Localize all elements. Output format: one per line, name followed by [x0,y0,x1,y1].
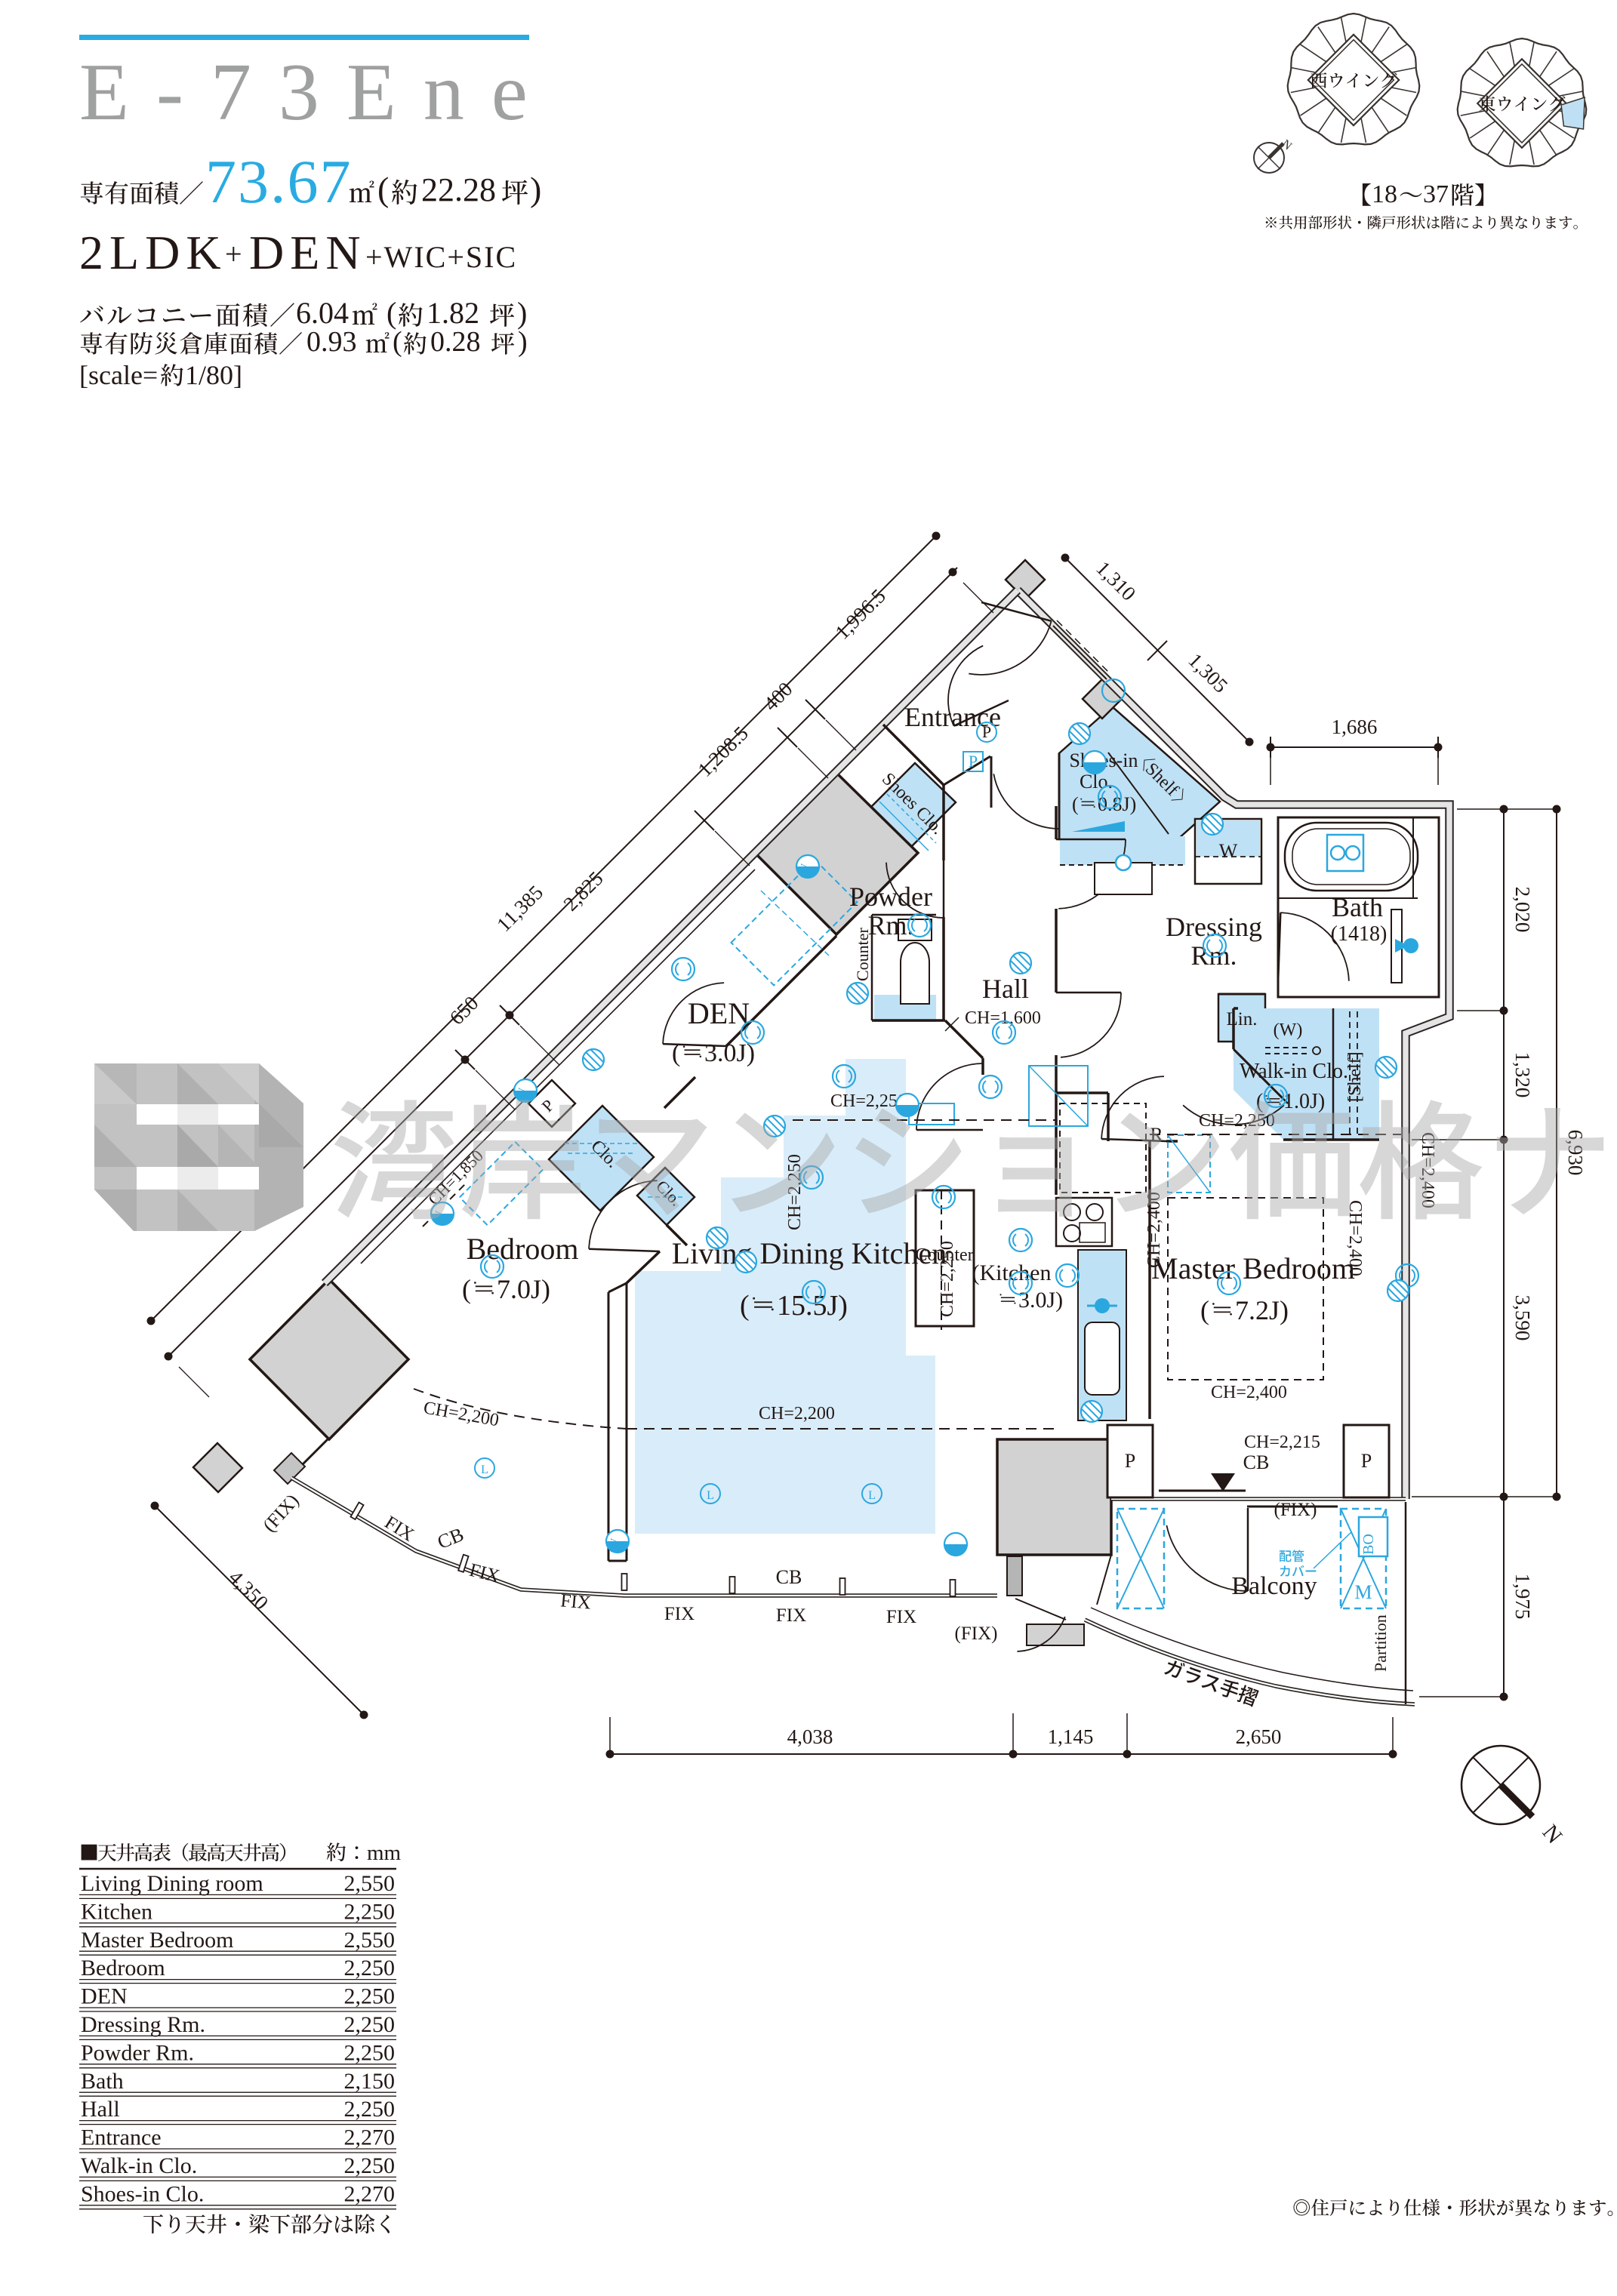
svg-text:+: + [225,237,242,271]
svg-text:Master Bedroom: Master Bedroom [1151,1251,1355,1285]
svg-text:[scale=: [scale= [79,360,158,390]
svg-text:2,250: 2,250 [344,1984,396,2009]
svg-text:(: ( [387,296,396,330]
svg-text:CH=2,215: CH=2,215 [1244,1433,1320,1452]
svg-text:(: ( [393,326,402,358]
svg-text:D: D [1086,762,1098,770]
svg-text:Kitchen: Kitchen [81,1899,152,1924]
svg-text:Bedroom: Bedroom [81,1956,165,1981]
svg-text:(: ( [462,1274,471,1304]
svg-text:Balcony: Balcony [1231,1572,1317,1600]
svg-text:6,930: 6,930 [1564,1130,1587,1176]
svg-text:(Kitchen: (Kitchen [972,1260,1052,1285]
svg-text:(: ( [1072,793,1079,815]
svg-text:1,145: 1,145 [1048,1725,1094,1748]
svg-text:7.0J): 7.0J) [497,1274,550,1304]
svg-text:FIX: FIX [559,1590,591,1613]
svg-text:Powder: Powder [849,882,932,912]
svg-text:CH=2,400: CH=2,400 [1211,1383,1287,1402]
svg-text:2,250: 2,250 [344,2012,396,2037]
svg-text:2,250: 2,250 [344,2097,396,2122]
svg-text:FIX: FIX [776,1605,806,1626]
svg-text:2,550: 2,550 [344,1928,396,1953]
svg-text:): ) [518,326,528,358]
svg-text:(: ( [672,1039,680,1067]
svg-text:Bath: Bath [1332,892,1383,922]
svg-text:7.2J): 7.2J) [1235,1295,1289,1325]
svg-text:P: P [1361,1450,1372,1472]
svg-text:P: P [969,752,978,771]
svg-text:(: ( [740,1290,750,1322]
svg-text:(FIX): (FIX) [1274,1500,1317,1520]
svg-text:Partition: Partition [1371,1614,1390,1672]
svg-text:22.28: 22.28 [421,171,496,208]
svg-text:2,020: 2,020 [1511,887,1534,933]
svg-text:): ) [530,170,541,208]
svg-text:BO: BO [1360,1534,1377,1555]
svg-text:P: P [982,722,991,741]
svg-text:2,250: 2,250 [344,2040,396,2065]
svg-text:Entrance: Entrance [81,2125,162,2150]
svg-text:TV: TV [517,1088,528,1102]
svg-text:2,550: 2,550 [344,1871,396,1896]
svg-text:(W): (W) [1274,1020,1303,1040]
svg-text:2,270: 2,270 [344,2125,396,2150]
svg-text:L: L [707,1489,714,1502]
svg-text:3.0J): 3.0J) [1018,1288,1063,1313]
svg-text:+WIC+SIC: +WIC+SIC [365,240,517,274]
svg-text:Walk-in Clo.: Walk-in Clo. [81,2153,197,2178]
svg-text:Dressing: Dressing [1166,912,1262,942]
svg-text:Counter: Counter [915,1245,973,1265]
svg-text:2LDK: 2LDK [79,226,227,279]
svg-text:Counter: Counter [853,927,872,981]
svg-text:W: W [1219,840,1238,862]
svg-text:(1418): (1418) [1331,922,1388,946]
svg-text:Hall: Hall [81,2097,120,2122]
svg-text:1.0J): 1.0J) [1283,1090,1325,1113]
svg-text:CH=2,200: CH=2,200 [759,1404,835,1423]
svg-text:1.82: 1.82 [427,296,479,330]
svg-text:(: ( [377,170,389,208]
svg-text:2,150: 2,150 [344,2069,396,2094]
svg-text:3.0J): 3.0J) [704,1039,755,1067]
svg-text:18: 18 [1372,180,1397,208]
svg-text:2,650: 2,650 [1236,1725,1282,1748]
svg-text:Bath: Bath [81,2069,124,2094]
svg-text:DEN: DEN [249,226,367,279]
svg-text:TV: TV [799,863,811,878]
svg-text:E-73Ene: E-73Ene [79,48,555,137]
svg-text:1,320: 1,320 [1511,1052,1534,1098]
svg-text:mm: mm [367,1841,402,1865]
svg-text:0.28: 0.28 [430,326,481,358]
svg-text:[Shelf]: [Shelf] [1345,1051,1365,1102]
svg-text:Living Dining room: Living Dining room [81,1871,263,1896]
svg-text:6.04: 6.04 [296,296,349,330]
svg-text:FIX: FIX [886,1607,916,1627]
svg-text:Master Bedroom: Master Bedroom [81,1928,233,1953]
svg-text:TV: TV [609,1538,621,1553]
svg-text:CB: CB [776,1566,802,1588]
svg-text:4,038: 4,038 [787,1725,833,1748]
svg-text:73.67: 73.67 [205,147,353,216]
svg-text:DEN: DEN [688,996,750,1030]
svg-text:L: L [868,1489,876,1502]
svg-text:Rm.: Rm. [867,910,913,940]
svg-text:(FIX): (FIX) [955,1624,998,1644]
svg-text:3,590: 3,590 [1511,1295,1534,1341]
svg-text:M: M [947,1543,959,1553]
svg-text:Dressing Rm.: Dressing Rm. [81,2012,205,2037]
svg-text:FIX: FIX [664,1604,695,1624]
svg-text:CB: CB [1243,1451,1270,1473]
svg-text:CH=2,250: CH=2,250 [830,1091,907,1111]
svg-text:DEN: DEN [81,1984,128,2009]
svg-text:2,270: 2,270 [344,2181,396,2206]
svg-text:1,686: 1,686 [1332,716,1378,738]
svg-text:L: L [481,1463,488,1476]
svg-text:CH=1,600: CH=1,600 [965,1008,1041,1028]
svg-text:Lin.: Lin. [1227,1009,1258,1030]
svg-text:15.5J): 15.5J) [777,1290,848,1322]
svg-text:Walk-in Clo.: Walk-in Clo. [1240,1060,1348,1083]
svg-text:1,975: 1,975 [1511,1574,1534,1620]
svg-text:2,250: 2,250 [344,2153,396,2178]
svg-text:37: 37 [1423,180,1449,208]
svg-text:T: T [899,1105,910,1112]
svg-text:Shoes-in Clo.: Shoes-in Clo. [81,2181,204,2206]
svg-text:2,250: 2,250 [344,1899,396,1924]
svg-text:2,250: 2,250 [344,1956,396,1981]
svg-text:(: ( [1200,1295,1209,1325]
svg-text:Rm.: Rm. [1190,940,1237,971]
svg-text:): ) [517,296,527,330]
svg-text:M: M [1354,1581,1372,1603]
svg-text:Powder Rm.: Powder Rm. [81,2040,194,2065]
svg-text:P: P [1125,1450,1135,1472]
svg-text:Hall: Hall [982,974,1029,1004]
svg-text:0.93: 0.93 [306,326,357,358]
svg-text:1/80]: 1/80] [185,360,242,390]
